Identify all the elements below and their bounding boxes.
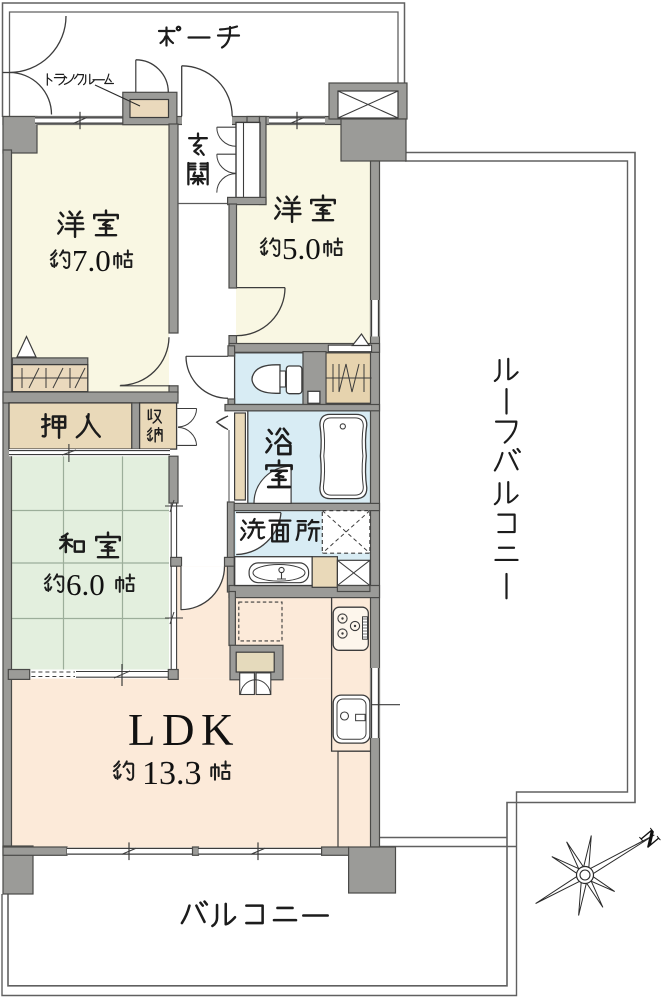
svg-text:LDK: LDK	[128, 705, 240, 755]
svg-text:7.0: 7.0	[72, 243, 111, 278]
svg-text:13.3: 13.3	[142, 755, 202, 792]
svg-text:6.0: 6.0	[66, 567, 105, 602]
svg-text:5.0: 5.0	[282, 231, 321, 266]
